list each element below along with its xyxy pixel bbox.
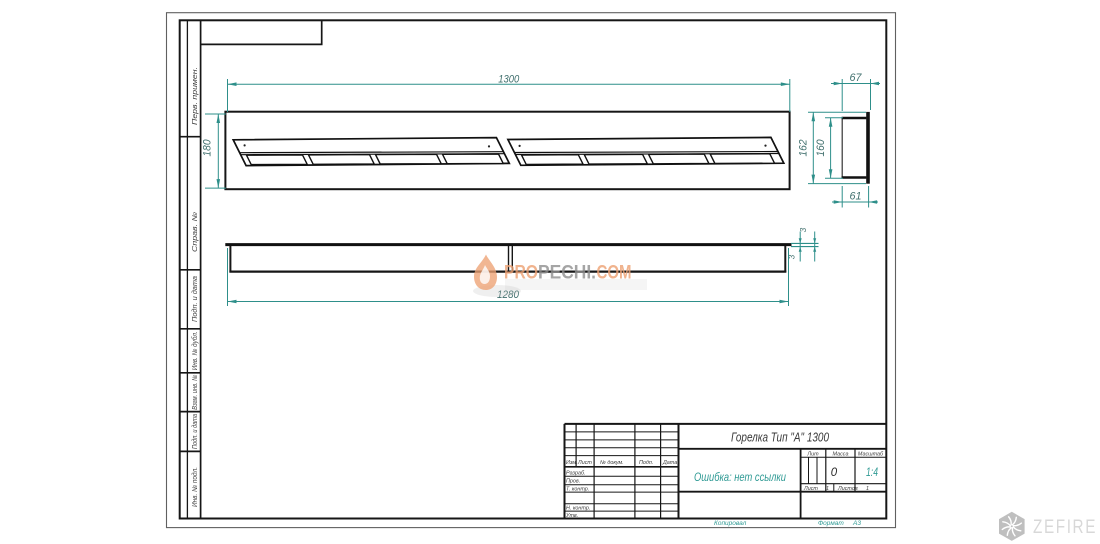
svg-text:Н. контр.: Н. контр. (566, 505, 590, 511)
svg-text:162: 162 (798, 140, 810, 157)
svg-text:PECHI.: PECHI. (538, 262, 596, 283)
svg-text:0: 0 (831, 467, 838, 479)
svg-text:PRO: PRO (504, 262, 538, 283)
svg-text:Дата: Дата (662, 460, 677, 466)
svg-text:Справ. №: Справ. № (192, 211, 199, 252)
svg-text:Инв. № дубл.: Инв. № дубл. (191, 331, 199, 370)
svg-text:180: 180 (202, 139, 214, 157)
svg-text:1: 1 (826, 486, 829, 492)
svg-text:Разраб.: Разраб. (566, 470, 586, 476)
svg-text:67: 67 (850, 72, 863, 84)
svg-text:Копировал: Копировал (714, 520, 747, 527)
svg-text:3: 3 (799, 227, 808, 232)
svg-text:COM: COM (597, 262, 632, 283)
svg-text:Масштаб: Масштаб (858, 451, 884, 457)
svg-text:Утв.: Утв. (565, 513, 578, 519)
svg-text:Подп. и дата: Подп. и дата (191, 276, 199, 322)
svg-text:Инв. № подл.: Инв. № подл. (191, 467, 199, 507)
svg-text:Подп.: Подп. (639, 460, 653, 466)
svg-text:ZEFIRE: ZEFIRE (1033, 517, 1097, 538)
svg-text:1300: 1300 (498, 73, 520, 85)
svg-text:Пров.: Пров. (566, 479, 580, 485)
svg-text:Перв. примен.: Перв. примен. (192, 67, 199, 125)
svg-text:№ докум.: № докум. (600, 460, 624, 466)
svg-text:А3: А3 (852, 520, 861, 527)
svg-text:Лист: Лист (803, 486, 818, 492)
svg-text:Лист: Лист (577, 460, 592, 466)
svg-text:Горелка Тип "А" 1300: Горелка Тип "А" 1300 (731, 430, 830, 445)
svg-text:Ошибка: нет ссылки: Ошибка: нет ссылки (694, 470, 786, 484)
svg-text:Подп. и дата: Подп. и дата (191, 414, 199, 449)
svg-text:Листов: Листов (837, 486, 858, 492)
svg-text:Масса: Масса (833, 451, 849, 457)
svg-text:61: 61 (850, 191, 862, 203)
svg-text:Изм.: Изм. (566, 460, 578, 466)
svg-text:1:4: 1:4 (866, 467, 878, 479)
svg-text:1: 1 (866, 486, 869, 492)
svg-text:Взам. инв. №: Взам. инв. № (192, 374, 199, 409)
svg-text:Лит: Лит (806, 451, 819, 457)
svg-text:Формат: Формат (818, 520, 844, 527)
svg-text:Т. контр.: Т. контр. (566, 486, 589, 492)
svg-text:160: 160 (815, 139, 827, 157)
